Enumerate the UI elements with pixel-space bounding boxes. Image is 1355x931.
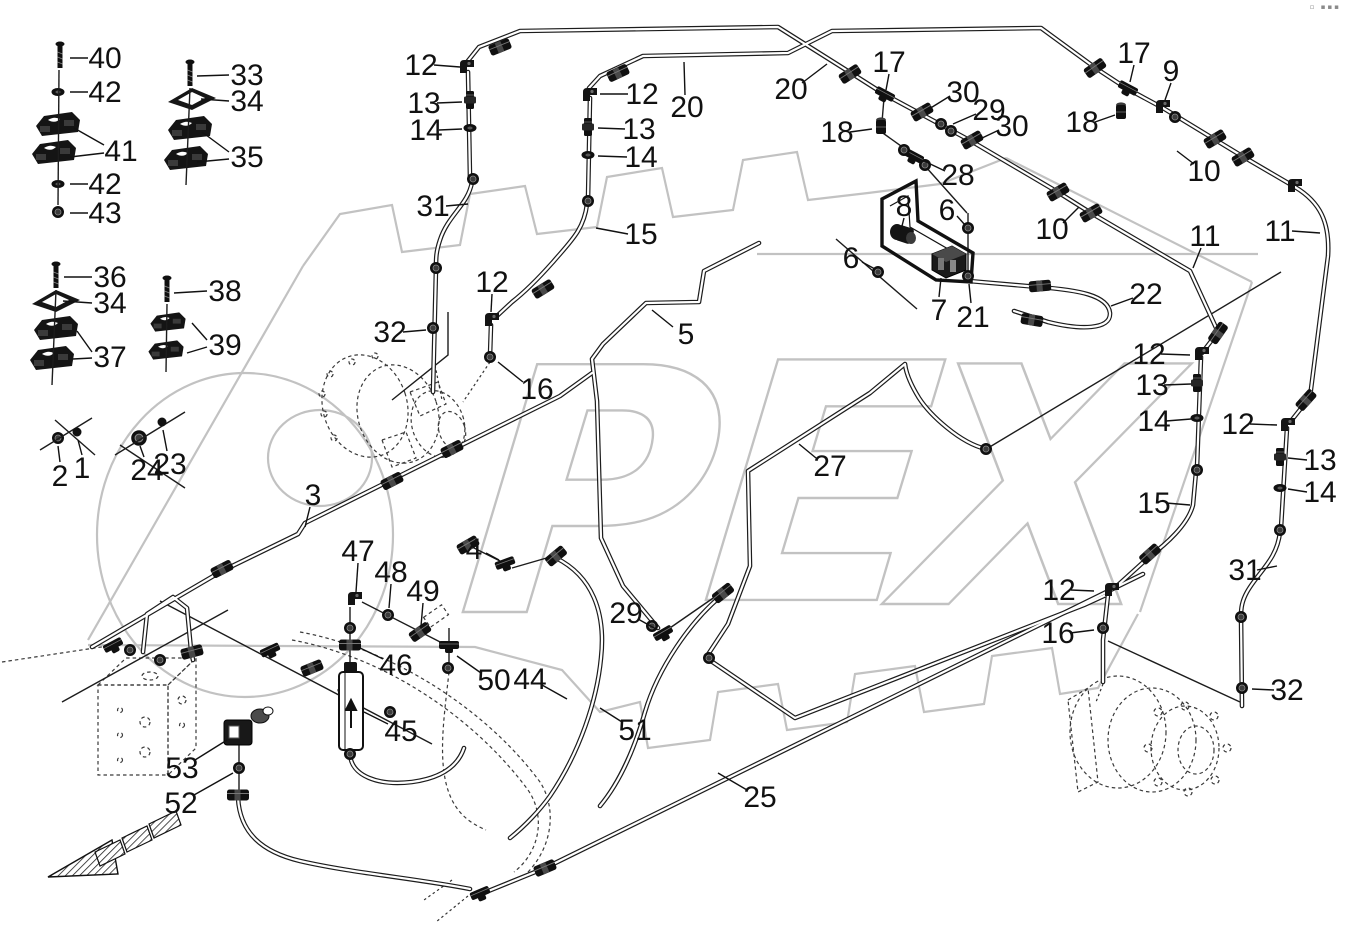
part-label-20: 20 [774, 73, 807, 106]
fitting-coup [339, 640, 361, 651]
fastener-stacks [30, 42, 216, 456]
watermark-opex: P E X [97, 295, 1199, 697]
block-fitting-7 [932, 246, 966, 278]
direction-arrow [48, 811, 181, 877]
leader-line [174, 291, 207, 293]
leader-line [77, 331, 92, 352]
part-label-53: 53 [165, 752, 198, 785]
part-label-47: 47 [341, 535, 374, 568]
part-label-25: 25 [743, 781, 776, 814]
part-label-22: 22 [1129, 278, 1162, 311]
part-label-14: 14 [1137, 405, 1170, 438]
leader-line [73, 358, 92, 359]
fitting-elb [583, 88, 597, 101]
part-label-12: 12 [1221, 408, 1254, 441]
fitting-plug [1116, 102, 1126, 119]
leader-line [187, 347, 207, 353]
fitting-nut [703, 652, 715, 664]
part-label-45: 45 [384, 715, 417, 748]
part-label-51: 51 [618, 714, 651, 747]
part-label-31: 31 [416, 190, 449, 223]
fitting-8 [890, 224, 916, 245]
fitting-wash [1191, 414, 1204, 422]
part-label-42: 42 [88, 76, 121, 109]
fitting-elb [1281, 418, 1295, 431]
fitting-coup [1295, 388, 1318, 412]
part-label-17: 17 [872, 46, 905, 79]
leader-line [1292, 231, 1320, 233]
part-label-15: 15 [624, 218, 657, 251]
parts-diagram: P E X [0, 0, 1355, 931]
part-label-16: 16 [1041, 617, 1074, 650]
fitting-nut [962, 270, 974, 282]
part-label-6: 6 [939, 194, 956, 227]
part-label-41: 41 [104, 135, 137, 168]
part-label-14: 14 [1303, 476, 1336, 509]
part-label-20: 20 [670, 91, 703, 124]
part-label-12: 12 [625, 78, 658, 111]
part-label-6: 6 [843, 242, 860, 275]
part-label-49: 49 [406, 575, 439, 608]
part-label-35: 35 [230, 141, 263, 174]
part-label-34: 34 [230, 85, 263, 118]
part-label-38: 38 [208, 275, 241, 308]
leader-line [598, 156, 627, 157]
fitting-nut [154, 654, 166, 666]
fitting-nut [945, 125, 957, 137]
part-label-12: 12 [1132, 338, 1165, 371]
part-label-34: 34 [93, 287, 126, 320]
part-label-31: 31 [1228, 554, 1261, 587]
part-label-12: 12 [1042, 574, 1075, 607]
fitting-nut [1169, 111, 1181, 123]
leader-line [197, 75, 229, 76]
part-label-32: 32 [373, 316, 406, 349]
part-label-12: 12 [475, 266, 508, 299]
part-label-32: 32 [1270, 674, 1303, 707]
filter-45 [339, 662, 363, 760]
part-label-9: 9 [1163, 55, 1180, 88]
part-label-46: 46 [379, 649, 412, 682]
part-label-44: 44 [513, 663, 546, 696]
part-label-40: 40 [88, 42, 121, 75]
fitting-wash [582, 151, 595, 159]
fitting-nut [1097, 622, 1109, 634]
leader-line [192, 323, 207, 340]
leader-line [70, 153, 104, 157]
leader-line [74, 128, 104, 145]
fitting-nut [427, 322, 439, 334]
part-label-30: 30 [995, 110, 1028, 143]
part-label-5: 5 [678, 318, 695, 351]
fitting-wash [464, 124, 477, 132]
leader-line [437, 102, 462, 103]
part-label-43: 43 [88, 197, 121, 230]
fitting-tee [469, 885, 492, 904]
fitting-bolt13 [464, 91, 476, 109]
fitting-nut [1236, 682, 1248, 694]
fitting-coup [1029, 280, 1052, 293]
fitting-elb [1195, 347, 1209, 360]
part-label-14: 14 [409, 114, 442, 147]
fitting-nut [484, 351, 496, 363]
leader-line [195, 740, 227, 760]
leader-line [596, 228, 628, 234]
fitting-wash [1274, 484, 1287, 492]
part-label-37: 37 [93, 341, 126, 374]
part-label-50: 50 [477, 664, 510, 697]
fitting-elb [460, 60, 474, 73]
part-label-14: 14 [624, 141, 657, 174]
part-label-48: 48 [374, 556, 407, 589]
part-label-18: 18 [1065, 106, 1098, 139]
fitting-coup [210, 559, 235, 579]
part-label-15: 15 [1137, 487, 1170, 520]
part-label-13: 13 [1135, 369, 1168, 402]
part-label-10: 10 [1035, 213, 1068, 246]
fitting-nut [430, 262, 442, 274]
pressure-switch-53 [224, 707, 273, 774]
fitting-elb [348, 592, 362, 605]
part-label-52: 52 [164, 787, 197, 820]
part-label-7: 7 [931, 294, 948, 327]
fitting-coup [227, 790, 249, 801]
part-label-29: 29 [609, 597, 642, 630]
part-label-4: 4 [466, 533, 483, 566]
part-label-27: 27 [813, 450, 846, 483]
fitting-nut [380, 607, 397, 624]
fitting-nut [1274, 524, 1286, 536]
leader-line [957, 216, 965, 225]
fitting-nut [467, 173, 479, 185]
parts-diagram-page: P E X [0, 0, 1355, 931]
part-label-12: 12 [404, 49, 437, 82]
fitting-coup [380, 471, 405, 491]
part-label-3: 3 [305, 479, 322, 512]
leader-line [434, 65, 460, 67]
part-label-18: 18 [820, 116, 853, 149]
part-label-8: 8 [896, 190, 913, 223]
fitting-nut [898, 144, 910, 156]
part-label-17: 17 [1117, 37, 1150, 70]
fitting-nut [1235, 611, 1247, 623]
part-label-21: 21 [956, 301, 989, 334]
fitting-nut [582, 195, 594, 207]
part-label-2: 2 [52, 460, 69, 493]
fitting-nut [124, 644, 136, 656]
part-label-28: 28 [941, 159, 974, 192]
fitting-bolt13 [582, 118, 594, 136]
fitting-plug [876, 117, 886, 134]
fitting-nut [442, 662, 454, 674]
part-label-10: 10 [1187, 155, 1220, 188]
part-label-13: 13 [1303, 444, 1336, 477]
part-label-23: 23 [153, 448, 186, 481]
fitting-nut [935, 118, 947, 130]
part-label-16: 16 [520, 373, 553, 406]
part-label-11: 11 [1189, 220, 1220, 253]
part-label-11: 11 [1264, 215, 1295, 248]
part-label-1: 1 [74, 452, 91, 485]
leader-line [202, 132, 229, 152]
part-label-39: 39 [208, 329, 241, 362]
wheel-motor-right [1068, 676, 1231, 796]
fitting-nut [344, 622, 356, 634]
fitting-nut [1191, 464, 1203, 476]
leader-line [598, 128, 625, 129]
corner-mark: ▫ ▪▪▪ [1310, 3, 1341, 11]
fitting-nut [980, 443, 992, 455]
